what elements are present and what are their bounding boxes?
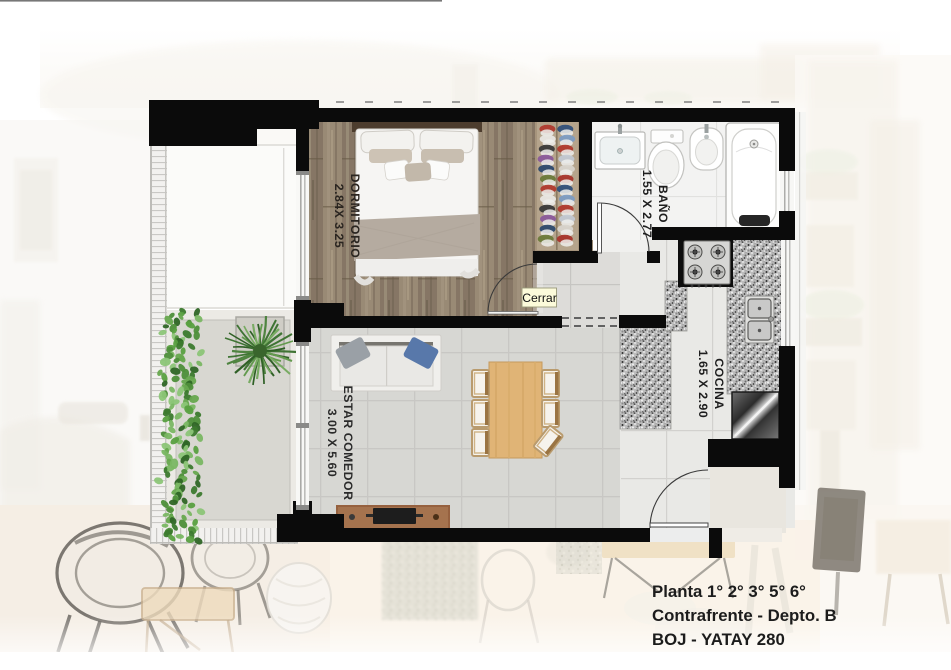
svg-text:BOJ - YATAY 280: BOJ - YATAY 280 (652, 630, 785, 649)
svg-text:Cerrar: Cerrar (522, 291, 557, 305)
svg-text:Planta 1° 2° 3° 5° 6°: Planta 1° 2° 3° 5° 6° (652, 582, 806, 601)
svg-text:Contrafrente - Depto. B: Contrafrente - Depto. B (652, 606, 837, 625)
